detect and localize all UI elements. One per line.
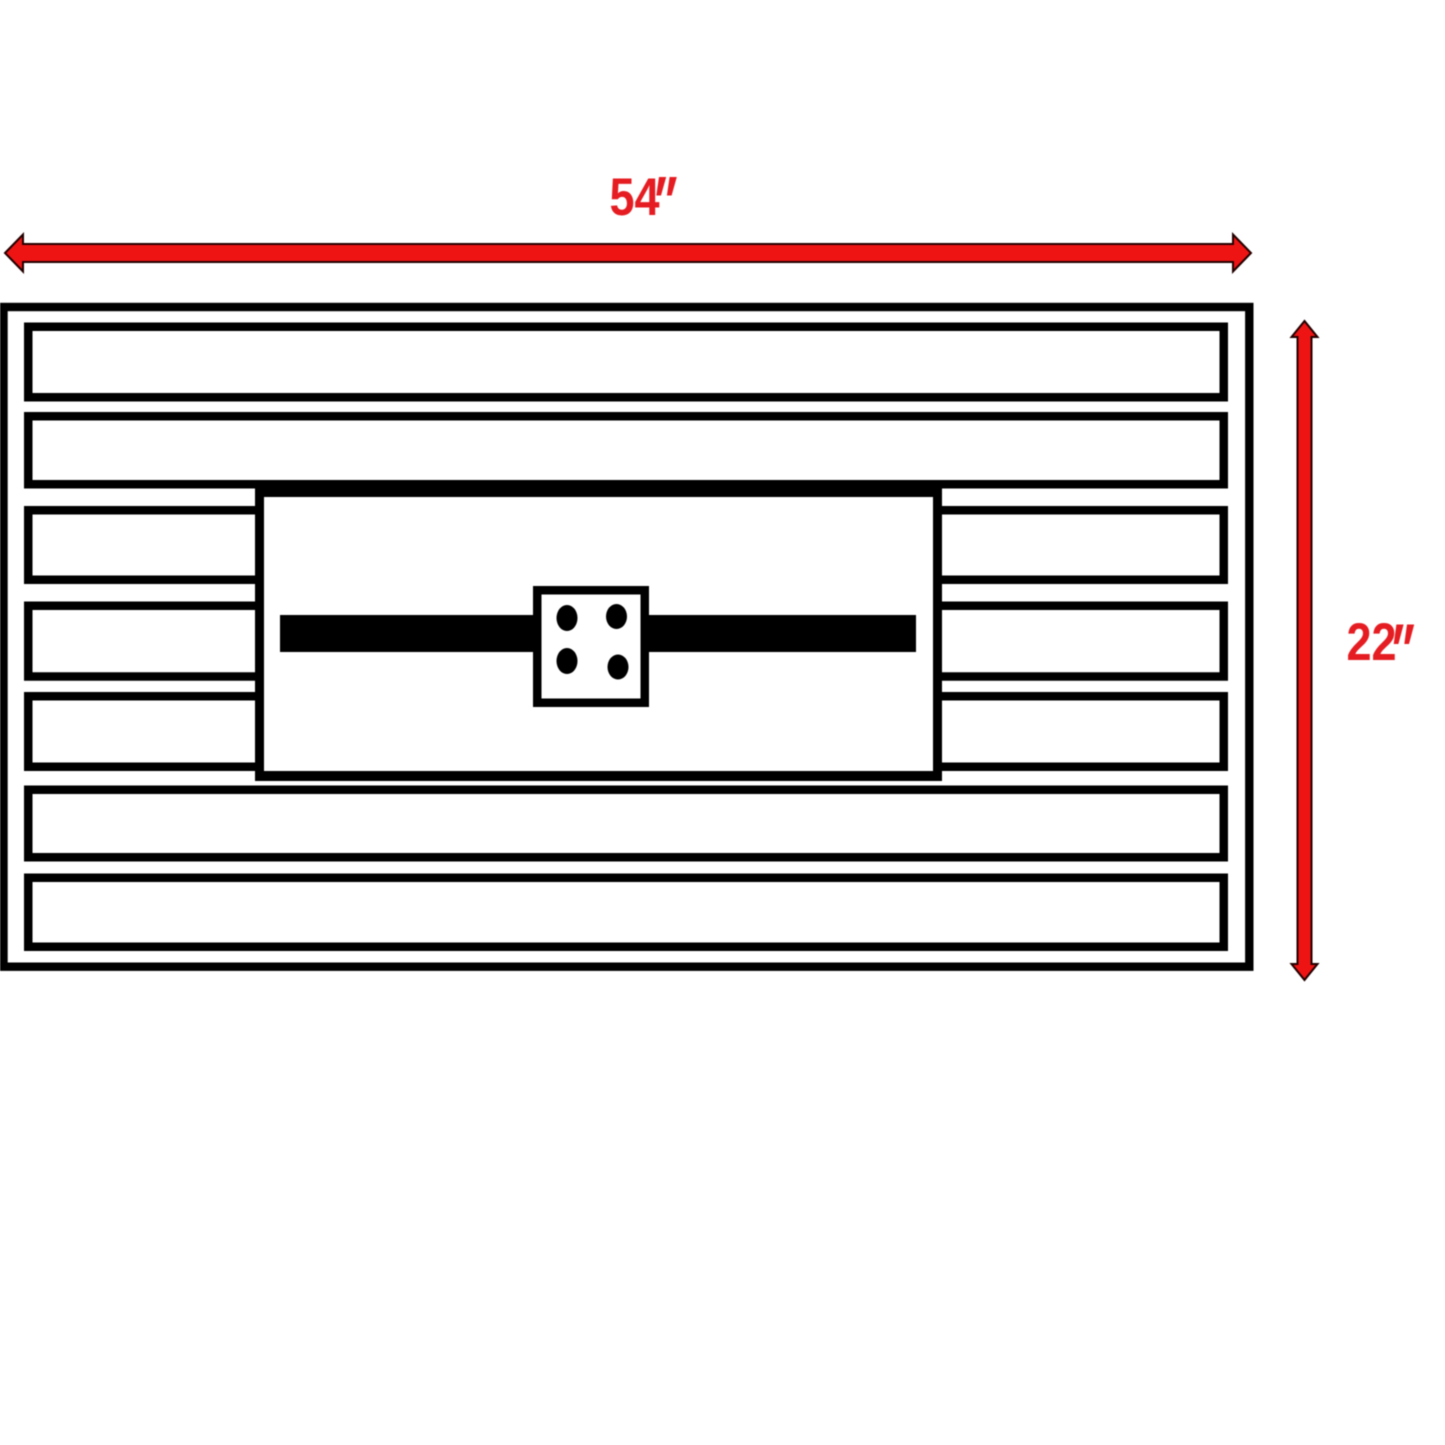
svg-text:22: 22 [1347, 613, 1397, 672]
svg-text:54: 54 [610, 168, 661, 227]
